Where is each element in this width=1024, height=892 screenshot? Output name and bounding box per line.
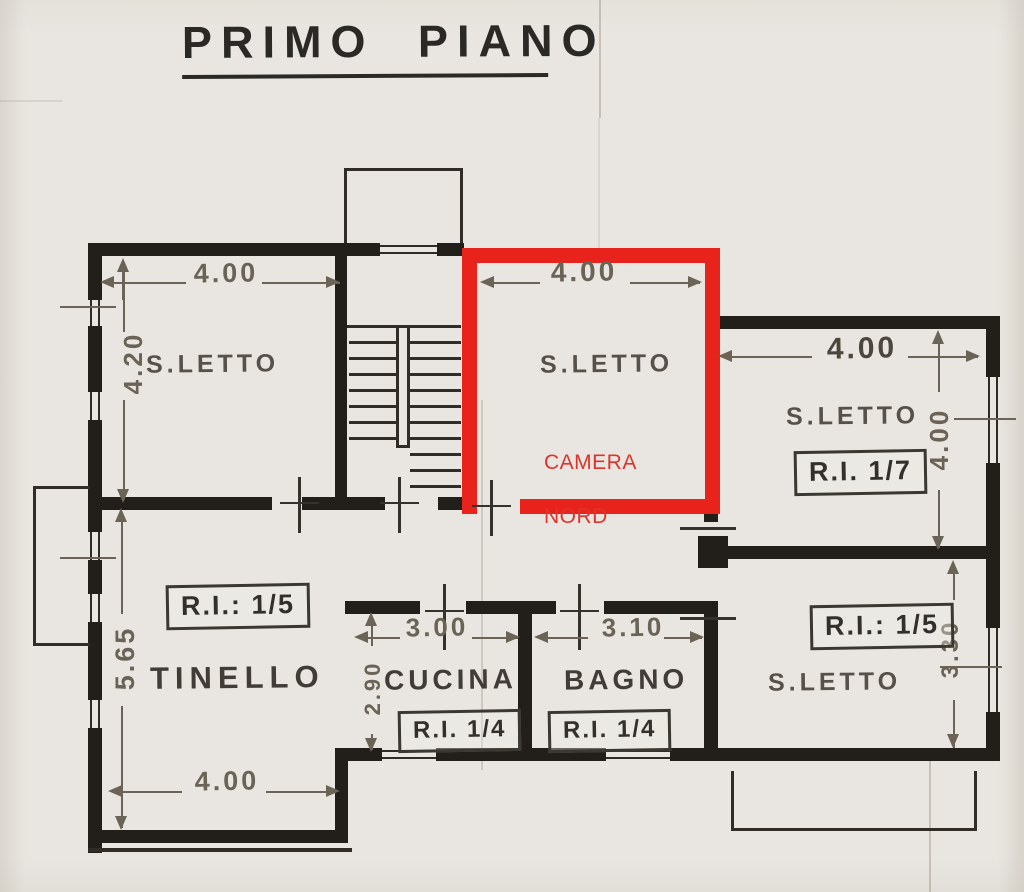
- dim-arrow: [966, 350, 980, 362]
- camera-nord-overlay-line2: NORD: [544, 503, 637, 530]
- dim-nw-width: 4.00: [186, 257, 267, 290]
- dim-line: [726, 356, 812, 358]
- wall-stair-left: [335, 256, 347, 510]
- dim-line: [488, 282, 540, 284]
- room-label-se-bedroom: S.LETTO: [768, 667, 901, 697]
- dim-line: [123, 400, 125, 500]
- ref-box-cucina: R.I. 1/4: [398, 709, 522, 753]
- window-line: [90, 700, 92, 728]
- page-title: PRIMO PIANO: [182, 15, 548, 79]
- dim-arrow: [326, 785, 340, 797]
- stair-step: [410, 341, 461, 344]
- dim-arrow: [354, 631, 368, 643]
- wall-left-exterior: [88, 243, 102, 300]
- wall-ne-se-divider: [728, 546, 1000, 559]
- dim-arrow: [117, 489, 129, 503]
- window-line: [606, 757, 670, 759]
- room-label-nw-bedroom: S.LETTO: [146, 349, 279, 379]
- dim-bagno-width: 3.10: [592, 611, 675, 644]
- room-label-camera-nord: S.LETTO: [540, 349, 673, 379]
- window-line: [988, 377, 990, 463]
- door-mark: [680, 527, 736, 530]
- door-mark: [578, 584, 581, 650]
- ref-box-ne-bedroom: R.I. 1/7: [794, 449, 928, 496]
- door-mark: [380, 502, 419, 504]
- stair-divider: [396, 325, 399, 448]
- window-line: [380, 245, 437, 247]
- balcony-left-bottom: [33, 643, 90, 646]
- stair-step: [410, 421, 461, 424]
- stair-step: [410, 405, 461, 408]
- ref-box-tinello: R.I.: 1/5: [166, 583, 311, 631]
- window-line: [382, 757, 436, 759]
- dim-arrow: [932, 330, 944, 344]
- dim-line: [108, 282, 186, 284]
- window-tick: [60, 306, 116, 308]
- door-mark: [298, 477, 301, 533]
- dim-arrow: [932, 536, 944, 550]
- window-line: [90, 594, 92, 622]
- highlight-wall-left: [462, 248, 477, 514]
- room-label-cucina: CUCINA: [384, 663, 517, 696]
- room-label-ne-bedroom: S.LETTO: [786, 401, 919, 431]
- window-line: [90, 300, 92, 326]
- dim-arrow: [718, 350, 732, 362]
- wall-top-nw: [88, 243, 380, 256]
- stair-step: [410, 389, 461, 392]
- dim-arrow: [480, 276, 494, 288]
- dim-arrow: [115, 508, 127, 522]
- stair-step: [410, 373, 461, 376]
- dim-arrow: [947, 560, 959, 574]
- dim-tinello-width: 4.00: [184, 765, 271, 798]
- stair-step: [349, 437, 396, 440]
- wall-se-left: [704, 606, 718, 761]
- stair-step: [410, 469, 461, 472]
- wall-cucina-bagno-top: [466, 601, 556, 614]
- dim-arrow: [947, 734, 959, 748]
- window-line: [996, 377, 998, 463]
- dim-line: [542, 637, 588, 639]
- wall-top-ne: [717, 316, 1000, 329]
- window-tick: [954, 418, 1016, 420]
- door-mark: [280, 502, 319, 504]
- balcony-se-edge: [974, 771, 977, 831]
- wall-stair-bottom-seg: [438, 497, 464, 510]
- window-line: [98, 532, 100, 560]
- stair-top-line: [347, 325, 461, 328]
- dim-line: [116, 791, 182, 793]
- wall-corridor-right-stub: [704, 514, 718, 522]
- wall-left-exterior: [88, 420, 102, 532]
- stair-step: [410, 437, 461, 440]
- window-line: [996, 628, 998, 712]
- door-mark: [680, 617, 736, 620]
- balcony-left-top: [33, 486, 90, 489]
- wall-tinello-bottom: [88, 830, 347, 843]
- stair-step: [349, 357, 396, 360]
- wall-stair-bottom: [335, 497, 385, 510]
- window-line: [90, 392, 92, 420]
- stair-step: [349, 341, 396, 344]
- stair-step: [410, 357, 461, 360]
- floor-plan: PRIMO PIANO: [0, 0, 1024, 892]
- wall-pillar: [698, 536, 728, 568]
- wall-top-nw-seg: [437, 243, 464, 256]
- balcony-left-edge: [33, 486, 36, 646]
- wall-left-exterior: [88, 622, 102, 700]
- dim-arrow: [326, 276, 340, 288]
- window-line: [988, 628, 990, 712]
- door-mark: [398, 477, 401, 533]
- dim-ne-width: 4.00: [812, 331, 913, 367]
- window-line: [380, 252, 437, 254]
- balcony-se-bottom: [731, 828, 977, 831]
- dim-ne-height: 4.00: [924, 393, 954, 485]
- dim-tinello-height: 5.65: [110, 610, 142, 706]
- dim-arrow: [108, 785, 122, 797]
- room-label-tinello: TINELLO: [150, 659, 325, 697]
- stair-step: [410, 485, 461, 488]
- ref-box-se-bedroom: R.I.: 1/5: [810, 603, 955, 651]
- wall-stair-bump-right: [460, 168, 463, 250]
- ref-box-bagno: R.I. 1/4: [548, 709, 672, 753]
- window-tick: [60, 557, 116, 559]
- dim-arrow: [688, 276, 702, 288]
- stair-divider-end: [396, 445, 410, 448]
- dim-camera-width: 4.00: [536, 255, 633, 289]
- camera-nord-overlay-line1: CAMERA: [544, 449, 637, 476]
- wall-stair-bump-left: [344, 168, 347, 250]
- dim-arrow: [100, 276, 114, 288]
- window-line: [98, 392, 100, 420]
- dim-arrow: [690, 631, 704, 643]
- stair-step: [349, 373, 396, 376]
- stair-step: [349, 421, 396, 424]
- window-line: [98, 300, 100, 326]
- paper-crease: [0, 100, 62, 102]
- wall-left-exterior: [88, 560, 102, 594]
- paper-crease: [598, 118, 600, 258]
- stair-step: [349, 389, 396, 392]
- wall-bottom: [670, 748, 1000, 761]
- door-mark: [472, 505, 511, 507]
- dim-arrow: [365, 612, 377, 626]
- dim-arrow: [117, 258, 129, 272]
- window-line: [98, 594, 100, 622]
- wall-left-exterior: [88, 326, 102, 392]
- dim-nw-height: 4.20: [118, 317, 148, 409]
- wall-tinello-outer-line: [88, 848, 352, 852]
- camera-nord-overlay: CAMERA NORD: [544, 422, 637, 557]
- stair-step: [410, 453, 461, 456]
- balcony-se-edge: [731, 771, 734, 831]
- highlight-wall-right: [705, 248, 720, 514]
- stair-step: [349, 405, 396, 408]
- window-line: [98, 700, 100, 728]
- dim-cucina-width: 3.00: [396, 611, 479, 644]
- dim-arrow: [115, 816, 127, 830]
- room-label-bagno: BAGNO: [564, 663, 689, 696]
- dim-line: [121, 514, 123, 614]
- dim-line: [938, 336, 940, 392]
- door-mark: [560, 610, 599, 612]
- paper-crease: [929, 750, 931, 892]
- window-line: [90, 532, 92, 560]
- dim-arrow: [534, 631, 548, 643]
- wall-stair-bump-top: [344, 168, 463, 171]
- wall-right-exterior: [986, 316, 1000, 377]
- dim-line: [121, 706, 123, 828]
- door-mark: [490, 480, 493, 536]
- dim-arrow: [506, 631, 520, 643]
- dim-arrow: [365, 738, 377, 752]
